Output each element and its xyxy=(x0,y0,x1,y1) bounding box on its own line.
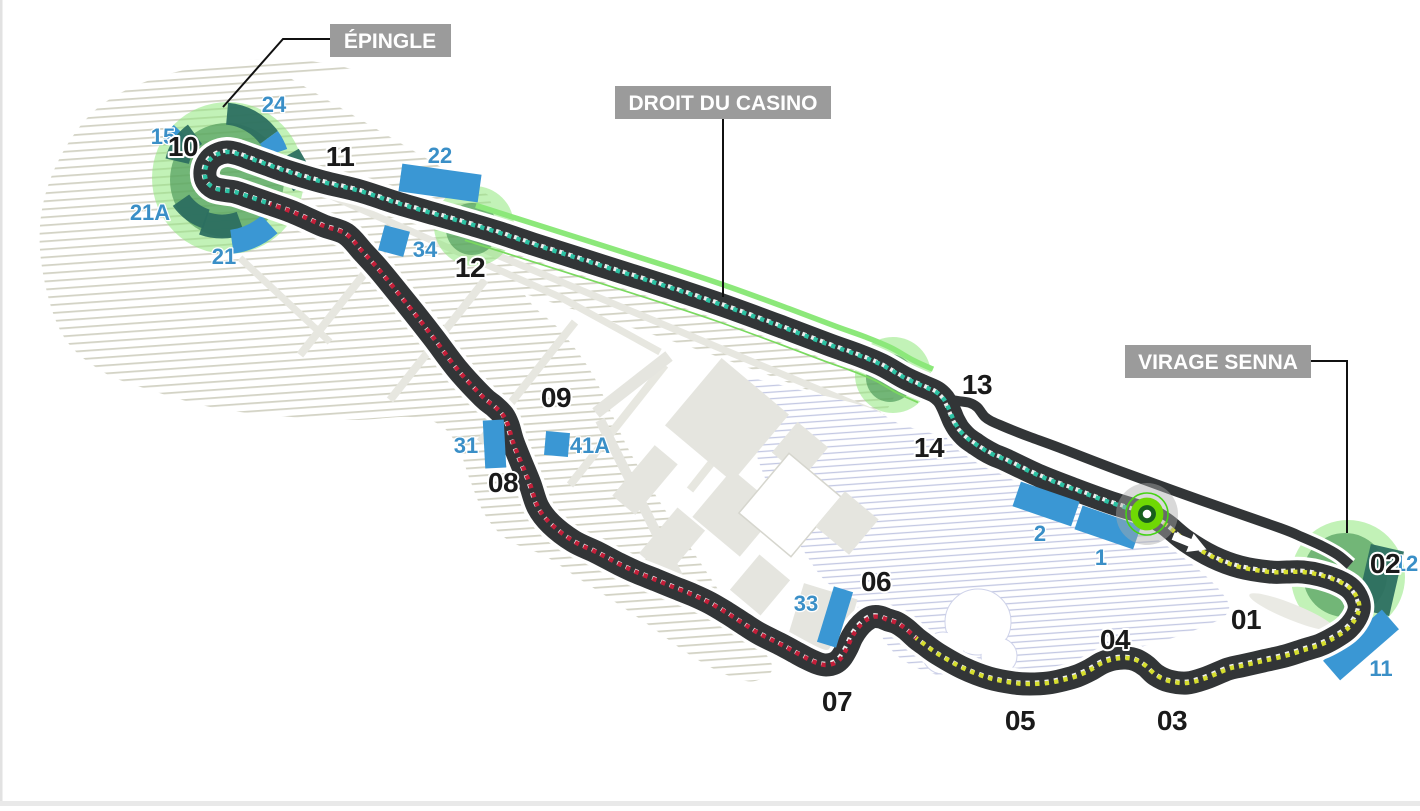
svg-text:21A: 21A xyxy=(130,200,170,225)
svg-text:34: 34 xyxy=(413,237,438,262)
svg-text:DROIT DU CASINO: DROIT DU CASINO xyxy=(629,92,818,115)
svg-text:08: 08 xyxy=(488,467,518,498)
svg-text:05: 05 xyxy=(1005,705,1035,736)
svg-text:ÉPINGLE: ÉPINGLE xyxy=(344,30,436,53)
svg-text:14: 14 xyxy=(914,432,945,463)
svg-text:41A: 41A xyxy=(570,433,610,458)
svg-text:13: 13 xyxy=(962,369,992,400)
svg-text:04: 04 xyxy=(1100,624,1131,655)
svg-text:21: 21 xyxy=(212,244,236,269)
svg-text:24: 24 xyxy=(262,92,287,117)
svg-text:33: 33 xyxy=(794,591,818,616)
svg-text:06: 06 xyxy=(861,566,891,597)
svg-text:09: 09 xyxy=(541,382,571,413)
svg-text:07: 07 xyxy=(822,686,852,717)
svg-text:03: 03 xyxy=(1157,705,1187,736)
svg-text:12: 12 xyxy=(455,252,485,283)
svg-text:11: 11 xyxy=(1369,656,1392,681)
svg-text:22: 22 xyxy=(428,143,452,168)
svg-text:10: 10 xyxy=(168,131,198,162)
svg-text:01: 01 xyxy=(1231,604,1261,635)
svg-text:VIRAGE SENNA: VIRAGE SENNA xyxy=(1138,351,1298,374)
svg-text:02: 02 xyxy=(1370,548,1400,579)
svg-text:31: 31 xyxy=(454,433,478,458)
svg-text:11: 11 xyxy=(326,141,355,172)
svg-text:1: 1 xyxy=(1095,545,1107,570)
svg-text:2: 2 xyxy=(1034,521,1046,546)
